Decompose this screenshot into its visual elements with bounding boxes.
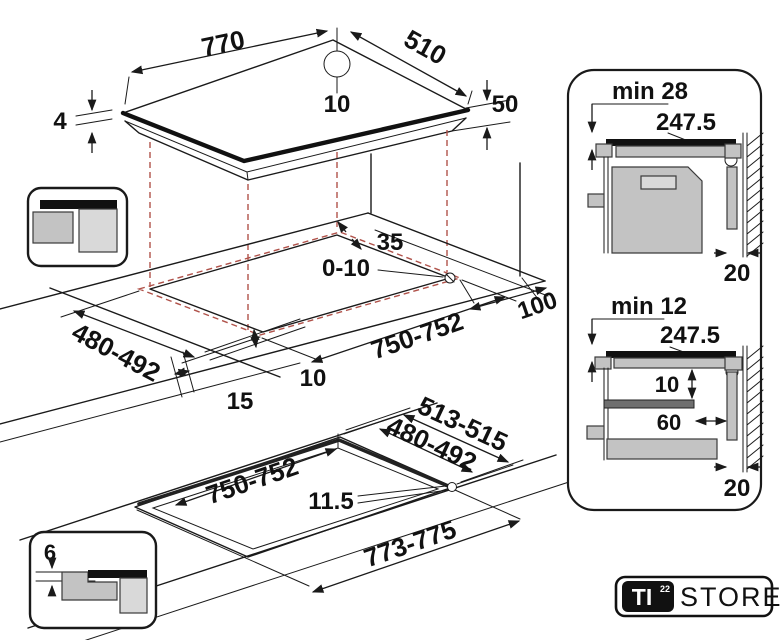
surface-mount-hob-body: [79, 209, 117, 252]
surface-mount-worktop-block: [33, 212, 73, 243]
drawer-rear-spacer: [727, 372, 737, 440]
oven-min-clearance-label: min 28: [612, 78, 688, 105]
dim-hole-play-label: 0-10: [322, 255, 370, 282]
dim-510-ext: [468, 91, 472, 104]
oven-cable-label: 247.5: [656, 109, 716, 136]
oven-wall-gap-label: 20: [724, 260, 751, 287]
dim-4-ext: [76, 110, 112, 125]
drawer-cabinet-tab: [587, 426, 604, 439]
dim-wall-clearance-label: 100: [514, 287, 561, 326]
dim-rear-gap-label: 35: [377, 229, 404, 256]
dim-glass-height-label: 4: [53, 108, 67, 135]
flush-mount-icon: 6: [30, 532, 156, 628]
drawer-worktop-slab: [614, 358, 726, 368]
hob-top-view: 10 770 510 4 50: [53, 23, 518, 180]
rebate-depth-label: 6: [44, 540, 56, 565]
dim-35-arrow-a: [338, 222, 346, 232]
dim-edge-gap-label: 10: [300, 365, 327, 392]
oven-hob-glass: [606, 139, 736, 146]
drawer-min-clearance-label: min 12: [611, 293, 687, 320]
logo-mark-text: TI: [632, 584, 652, 610]
drawer-hob-glass: [606, 351, 736, 358]
dim-side-gap-label: 15: [227, 388, 254, 415]
drawer-cable-label: 247.5: [660, 322, 720, 349]
dim-15-line: [175, 371, 189, 374]
surface-mount-icon: [28, 188, 127, 266]
oven-right-bracket: [725, 144, 741, 158]
dim-hole-to-edge-label: 10: [324, 91, 351, 118]
cable-hole-mark: [324, 51, 350, 77]
panel-depth-label: 60: [657, 410, 681, 435]
projection-lines: [139, 130, 460, 335]
logo-mark-sup: 22: [660, 584, 670, 594]
flush-hob-body: [120, 578, 147, 613]
flush-glass-bar: [88, 570, 147, 578]
oven-cabinet-tab: [588, 194, 604, 207]
diagram-canvas: 10 770 510 4 50: [0, 0, 783, 640]
oven-vent: [641, 176, 676, 189]
hob-installation-diagram: 10 770 510 4 50: [0, 0, 783, 640]
logo-store-text: STORE: [680, 582, 783, 612]
dim-box-height-label: 50: [492, 91, 519, 118]
panel-gap-label: 10: [655, 372, 679, 397]
oven-rear-spacer: [727, 167, 737, 229]
drawer-box: [607, 439, 717, 459]
flush-cutout-width-label: 750-752: [202, 451, 302, 510]
drawer-right-bracket: [725, 357, 742, 370]
oven-worktop-slab: [616, 146, 726, 157]
separator-panel: [604, 400, 694, 408]
drawer-left-bracket: [595, 357, 611, 369]
corner-radius-label: 11.5: [308, 488, 353, 515]
brand-logo: TI 22 STORE: [616, 577, 783, 616]
side-section-card: min 28 247.5 20 min 12: [568, 70, 763, 510]
oven-left-bracket: [596, 144, 612, 157]
dim-width-label: 770: [199, 24, 248, 62]
surface-mount-glass-bar: [40, 200, 117, 209]
recess-width-label: 773-775: [360, 514, 460, 573]
dim-770-ext: [125, 77, 129, 104]
drawer-wall-gap-label: 20: [724, 475, 751, 502]
